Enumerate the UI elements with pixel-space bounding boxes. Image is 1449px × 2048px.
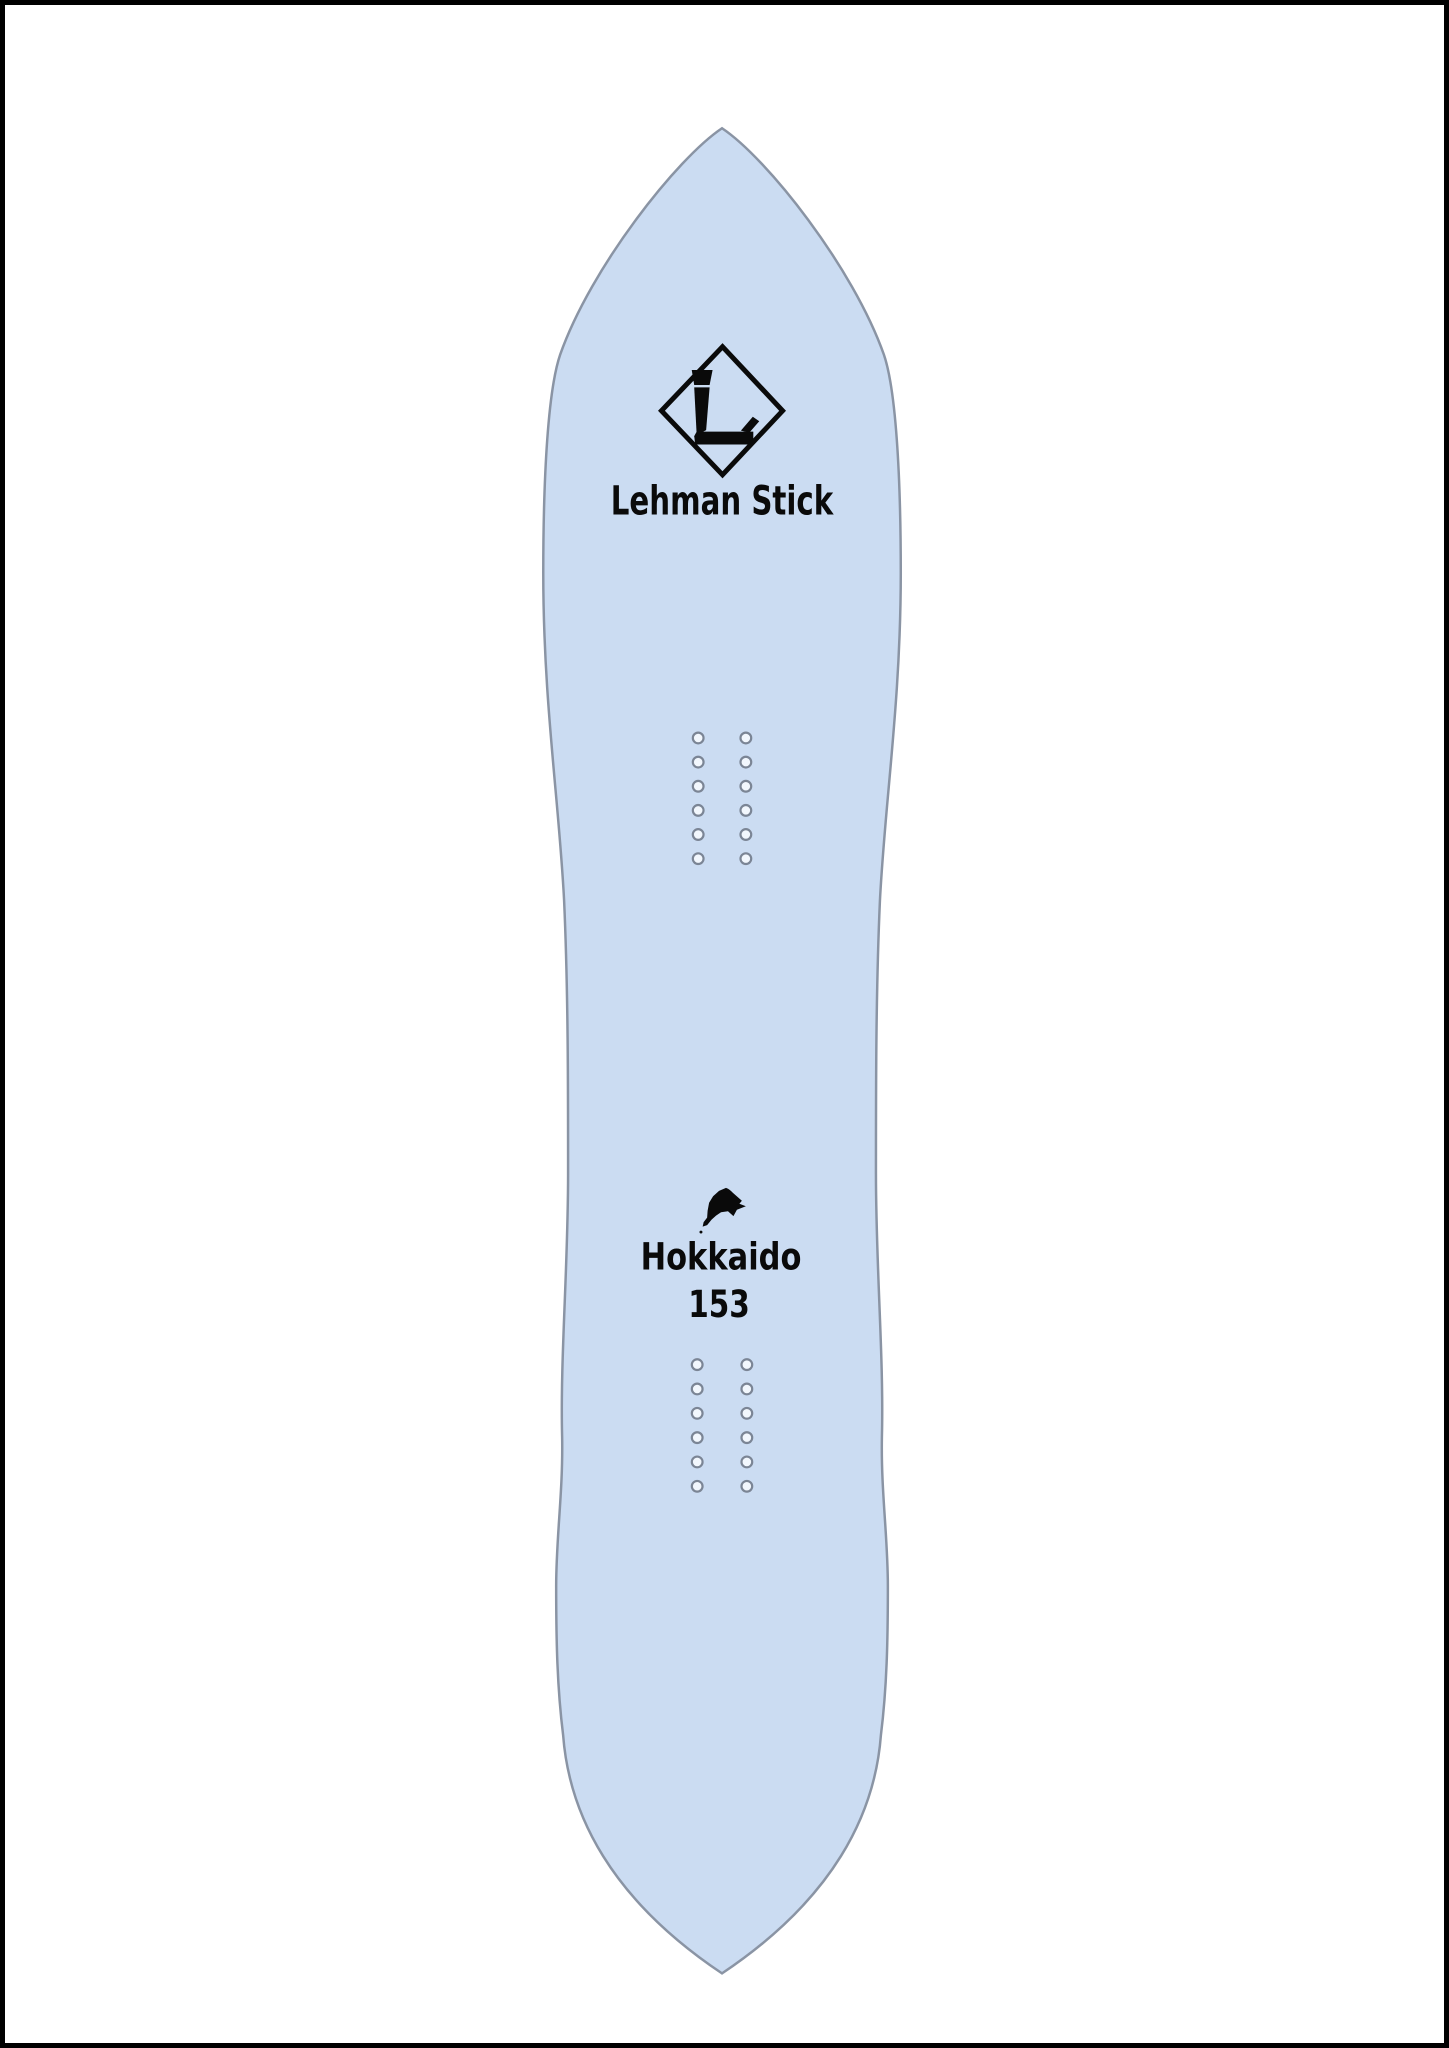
insert-hole xyxy=(692,1481,703,1492)
insert-hole xyxy=(693,733,704,744)
insert-hole xyxy=(740,853,751,864)
insert-hole xyxy=(692,1408,703,1419)
snowboard-graphic: Lehman Stick Hokkaido 153 xyxy=(5,5,1444,2043)
insert-hole xyxy=(693,757,704,768)
insert-hole xyxy=(692,1457,703,1468)
board-length: 153 xyxy=(688,1282,750,1326)
insert-hole xyxy=(692,1384,703,1395)
page-frame: Lehman Stick Hokkaido 153 xyxy=(0,0,1449,2048)
insert-hole xyxy=(693,853,704,864)
brand-name: Lehman Stick xyxy=(611,479,835,525)
insert-hole xyxy=(693,805,704,816)
insert-hole xyxy=(741,1408,752,1419)
insert-hole xyxy=(740,829,751,840)
insert-hole xyxy=(692,1432,703,1443)
okushiri-island-dot xyxy=(699,1231,702,1234)
insert-hole xyxy=(741,1359,752,1370)
insert-hole xyxy=(741,1432,752,1443)
insert-hole xyxy=(741,1481,752,1492)
insert-hole xyxy=(740,733,751,744)
insert-hole xyxy=(693,781,704,792)
model-name: Hokkaido xyxy=(641,1234,802,1278)
insert-hole xyxy=(741,1384,752,1395)
insert-hole xyxy=(692,1359,703,1370)
insert-hole xyxy=(740,757,751,768)
insert-hole xyxy=(741,1457,752,1468)
insert-hole xyxy=(740,805,751,816)
insert-hole xyxy=(740,781,751,792)
snowboard-deck xyxy=(543,128,901,1973)
insert-hole xyxy=(693,829,704,840)
